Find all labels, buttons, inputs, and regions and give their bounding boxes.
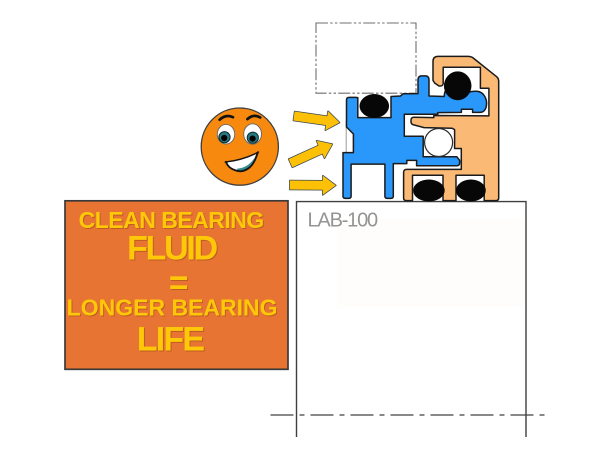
svg-text:LAB-100: LAB-100 <box>308 210 379 232</box>
svg-text:LONGER BEARING: LONGER BEARING <box>67 294 278 320</box>
svg-text:LIFE: LIFE <box>137 321 205 359</box>
svg-text:FLUID: FLUID <box>127 230 218 268</box>
